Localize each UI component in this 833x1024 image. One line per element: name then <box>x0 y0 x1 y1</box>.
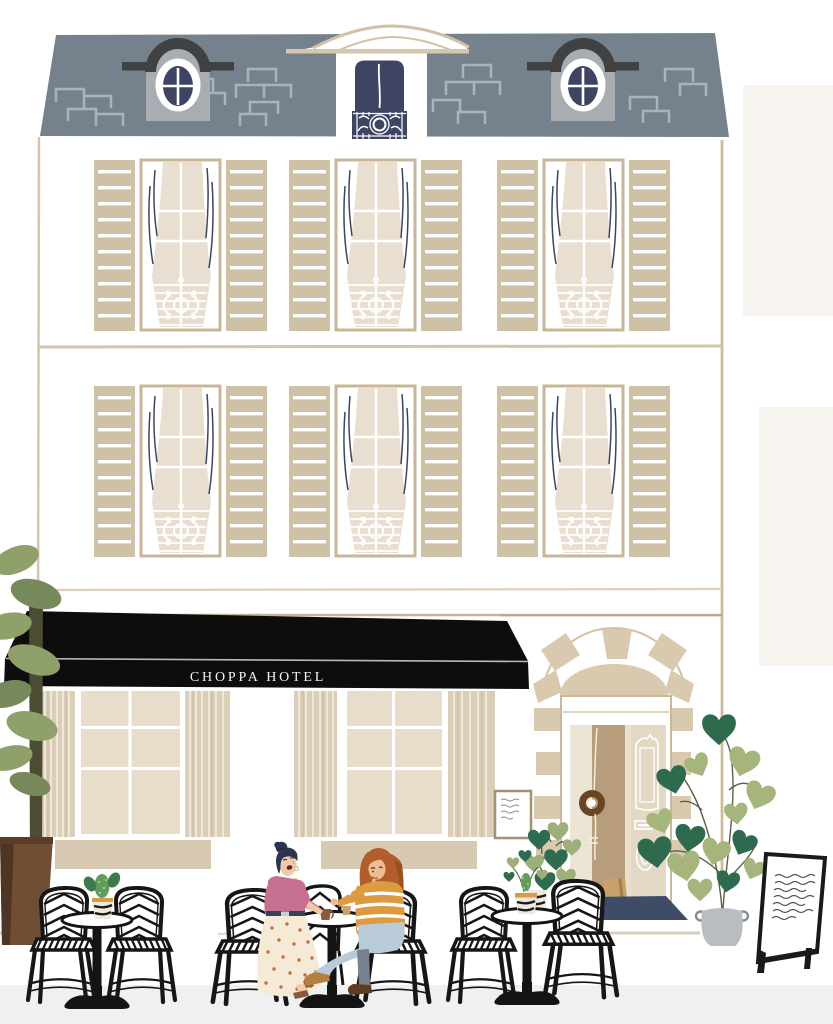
svg-text:CHOPPA HOTEL: CHOPPA HOTEL <box>190 670 326 685</box>
